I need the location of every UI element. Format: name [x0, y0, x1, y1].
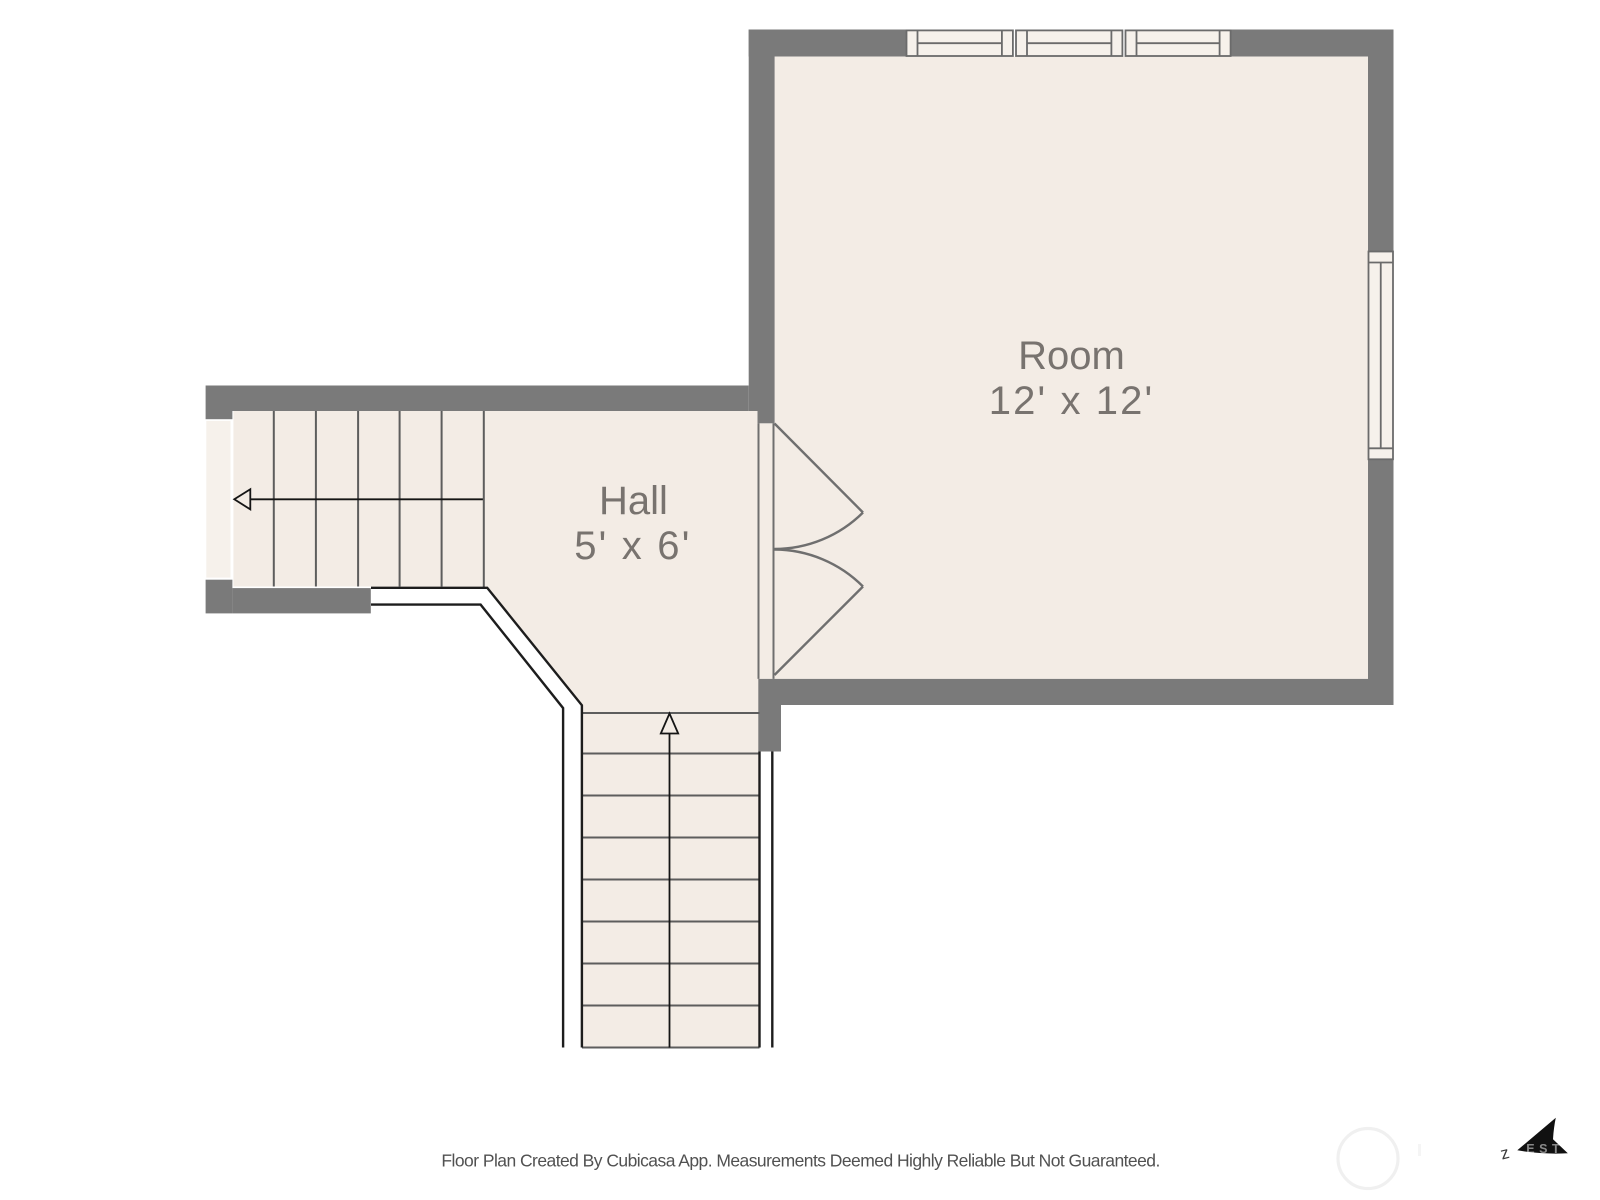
svg-text:Room: Room	[1018, 334, 1125, 378]
svg-text:12' x 12': 12' x 12'	[989, 379, 1154, 423]
svg-text:Floor Plan Created By Cubicasa: Floor Plan Created By Cubicasa App. Meas…	[441, 1151, 1159, 1171]
svg-text:Hall: Hall	[599, 479, 668, 523]
svg-text:5' x 6': 5' x 6'	[574, 524, 691, 568]
svg-text:EST: EST	[1526, 1142, 1564, 1156]
svg-text:z: z	[1498, 1143, 1511, 1163]
